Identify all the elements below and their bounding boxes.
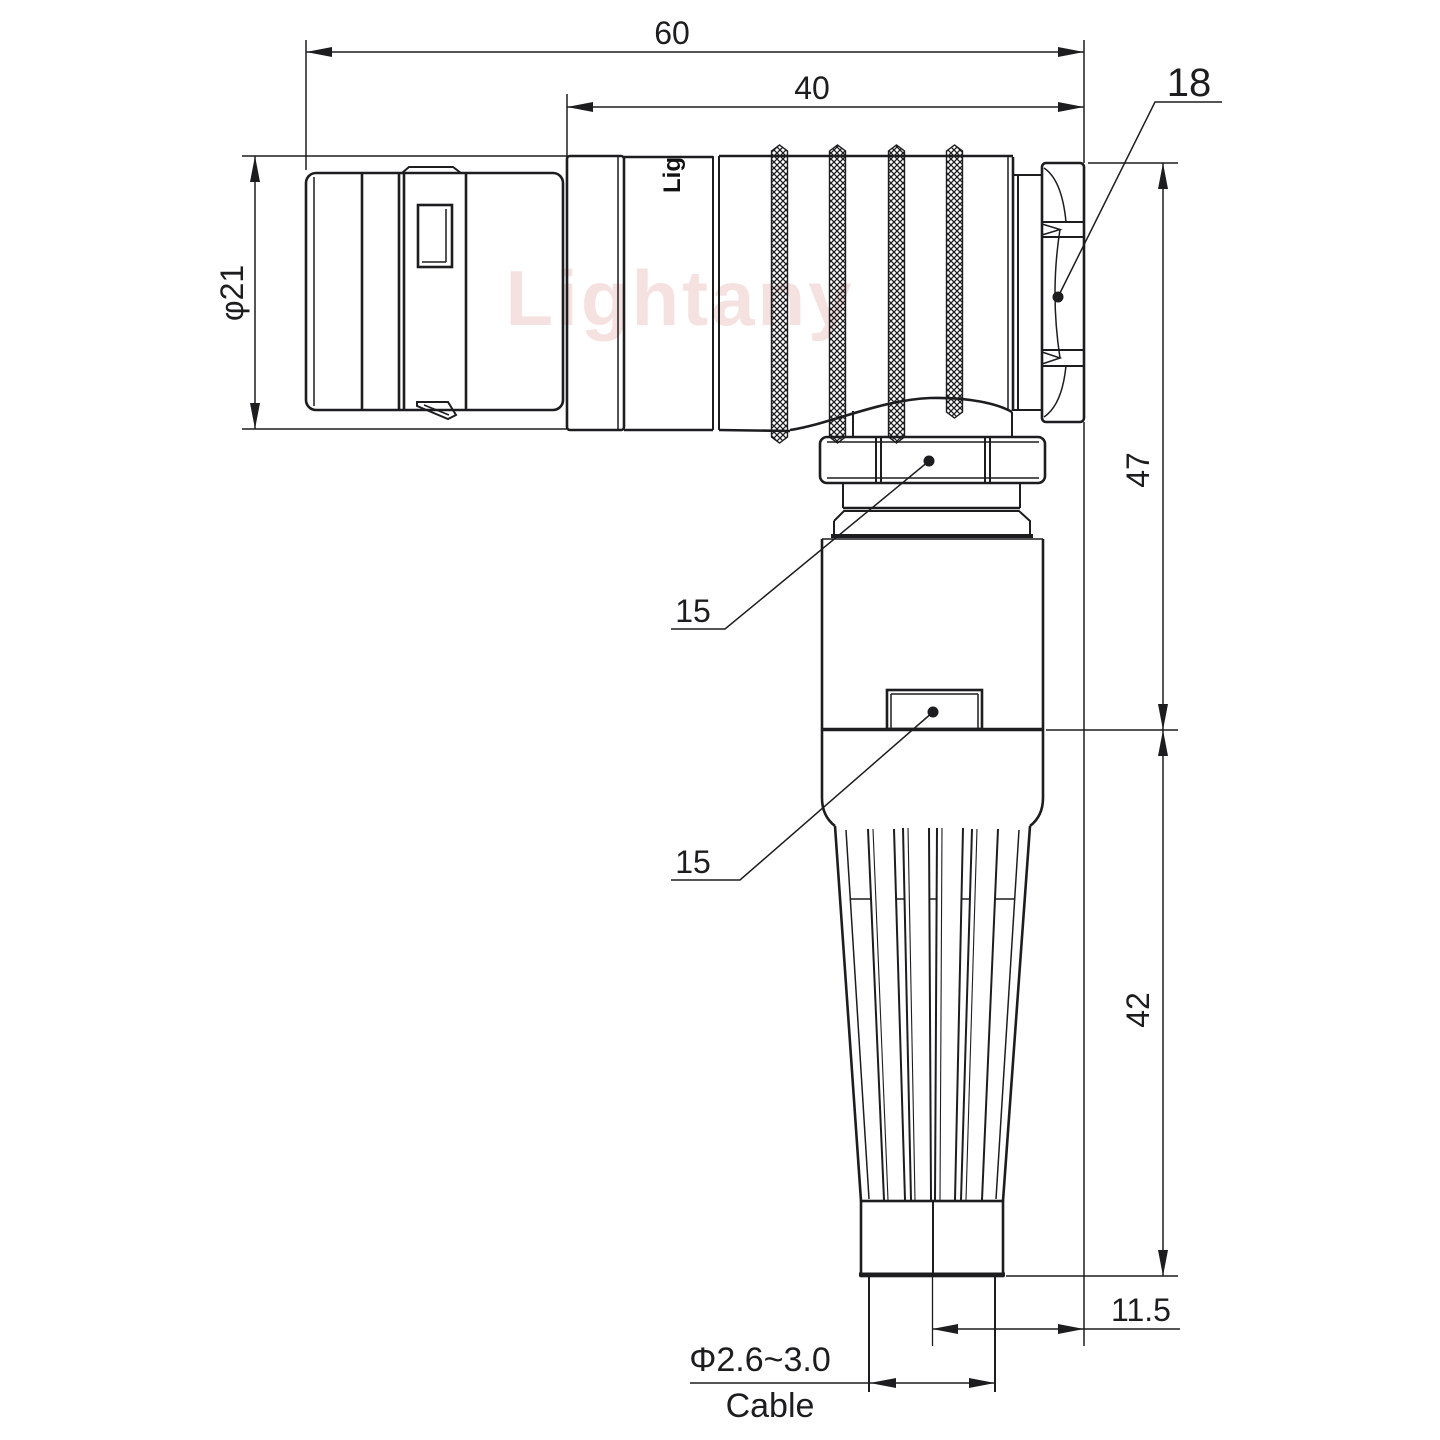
cable-collar — [859, 1201, 1005, 1276]
dim-42-label: 42 — [1120, 992, 1156, 1028]
dim-cable-diameter-label: Φ2.6~3.0 — [689, 1341, 831, 1379]
dim-60-label: 60 — [654, 15, 690, 51]
technical-drawing-page: Lightany Lig — [0, 0, 1440, 1440]
dim-47-label: 47 — [1120, 452, 1156, 488]
dim-15-upper-label: 15 — [675, 593, 711, 629]
part-logo-text: Lig — [659, 157, 686, 193]
dim-15-lower-label: 15 — [675, 844, 711, 880]
dim-backnut-15: 15 — [671, 456, 935, 630]
cable — [869, 1276, 995, 1392]
leader-dot-15-lower — [928, 707, 939, 718]
dim-lower-height: 42 — [1006, 730, 1178, 1276]
hex-nut-front — [1042, 163, 1084, 422]
elbow — [790, 398, 1045, 536]
dim-cable-offset: 11.5 — [932, 1292, 1180, 1334]
dim-upper-height: 47 — [1046, 163, 1178, 730]
dim-hex-nut-18: 18 — [1053, 61, 1223, 303]
watermark-text: Lightany — [506, 254, 855, 342]
strain-relief — [835, 826, 1030, 1201]
dim-rear-length: 40 — [567, 70, 1084, 158]
vertical-body — [822, 539, 1043, 826]
cable-label: Cable — [726, 1387, 815, 1425]
dim-11-5-label: 11.5 — [1111, 1292, 1171, 1328]
dim-18-label: 18 — [1167, 61, 1212, 105]
leader-dot-18 — [1053, 292, 1064, 303]
connector-technical-drawing: Lightany Lig — [0, 0, 1440, 1440]
dim-40-label: 40 — [794, 70, 830, 106]
dim-cable-diameter: Φ2.6~3.0 Cable — [689, 1341, 995, 1425]
neck-steps — [831, 483, 1033, 536]
dim-overall-length: 60 — [306, 15, 1084, 170]
keying-window — [418, 205, 452, 267]
leader-dot-15-upper — [924, 456, 935, 467]
dim-body-15: 15 — [671, 707, 939, 881]
groove — [1013, 175, 1042, 410]
dim-phi21-label: φ21 — [214, 265, 250, 321]
